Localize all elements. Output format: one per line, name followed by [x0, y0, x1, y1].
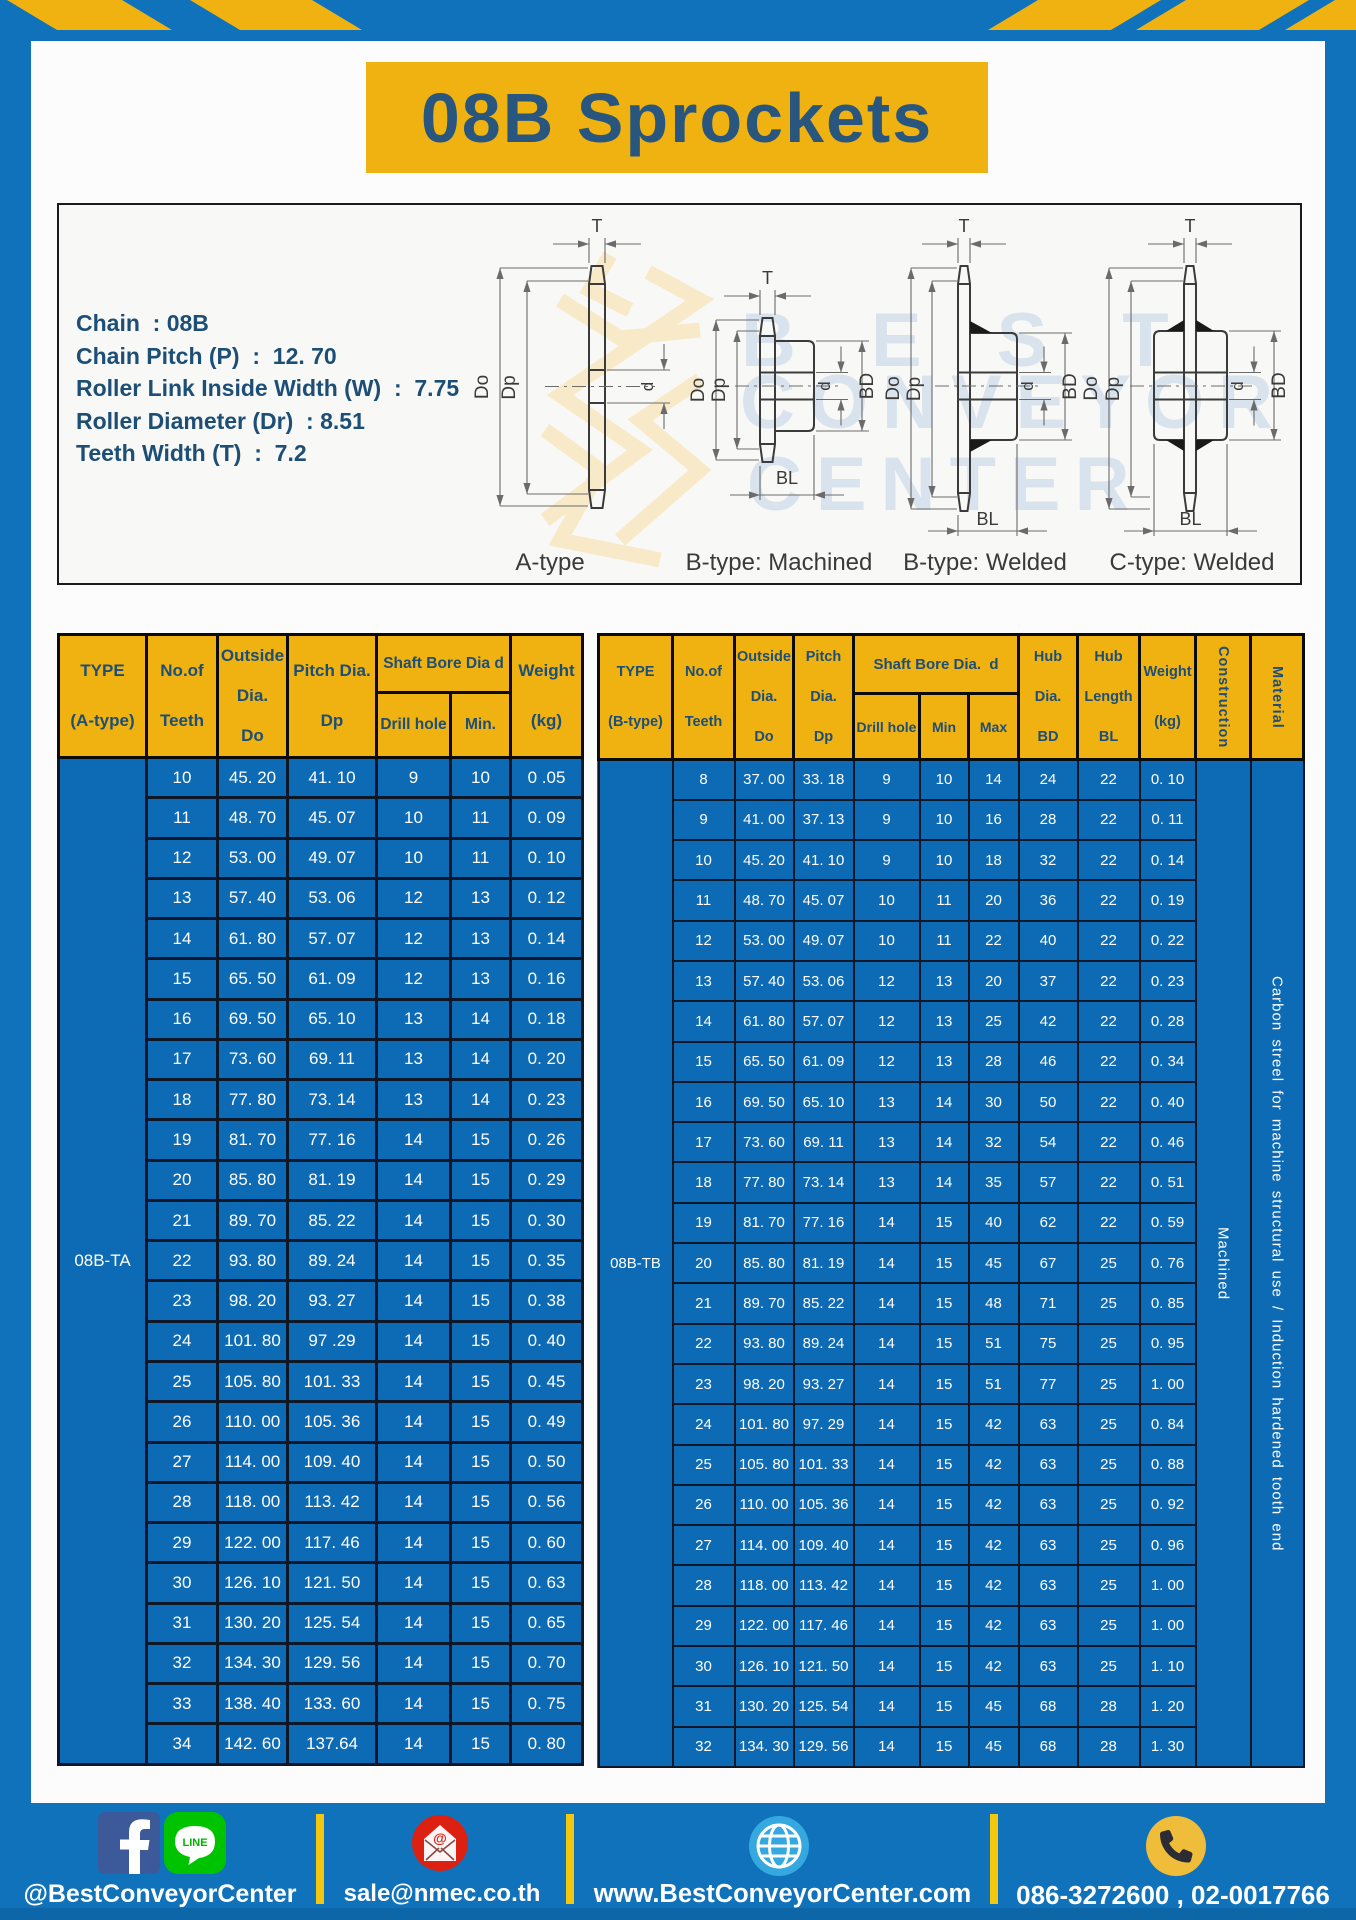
svg-text:LINE: LINE — [182, 1837, 207, 1849]
svg-text:@: @ — [433, 1830, 447, 1846]
